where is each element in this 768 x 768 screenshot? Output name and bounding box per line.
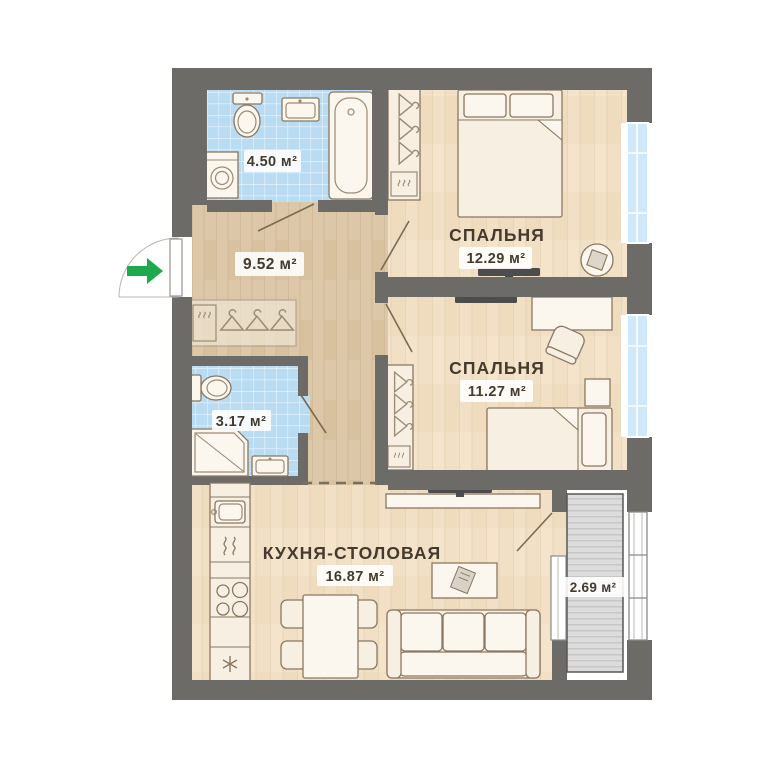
coffee-table-icon: [432, 563, 497, 598]
entrance-door: [119, 237, 192, 297]
balcony-window: [629, 512, 647, 640]
area-label-hallway: 9.52 м²: [243, 256, 297, 273]
room-title-bedroom-1: СПАЛЬНЯ: [449, 225, 545, 245]
dining-table: [303, 595, 358, 678]
wardrobe: [385, 365, 413, 470]
area-label-bathroom-small: 3.17 м²: [216, 414, 267, 430]
nightstand: [585, 379, 610, 406]
area-label-bathroom-main: 4.50 м²: [247, 154, 298, 170]
bath-sink-icon: [252, 456, 288, 476]
door-leaf: [170, 239, 182, 296]
pouf-icon: [581, 244, 613, 276]
double-bed-icon: [458, 90, 562, 217]
single-bed-icon: [487, 408, 612, 472]
toilet-icon: [191, 375, 231, 401]
desk: [532, 297, 612, 330]
area-label-balcony: 2.69 м²: [570, 580, 617, 595]
bath-sink-icon: [282, 98, 319, 121]
window: [621, 315, 648, 437]
floor-plan: 4.50 м² 9.52 м²: [0, 0, 768, 768]
washing-machine-icon: [206, 152, 238, 198]
floor-plan-canvas: 4.50 м² 9.52 м²: [0, 0, 768, 768]
coat-rack: [190, 300, 296, 346]
bathtub-icon: [329, 92, 373, 199]
wardrobe: [388, 88, 420, 200]
sofa: [387, 610, 540, 678]
balcony-inner-window: [551, 556, 566, 640]
area-label-kitchen: 16.87 м²: [325, 569, 384, 585]
room-title-kitchen: КУХНЯ-СТОЛОВАЯ: [263, 543, 442, 563]
windows: [621, 123, 648, 640]
toilet-icon: [233, 93, 262, 137]
area-label-bedroom-2: 11.27 м²: [468, 384, 526, 400]
shower-icon: [191, 429, 248, 476]
bathroom-small-door-gap: [296, 396, 310, 433]
room-bathroom-small: 3.17 м²: [184, 356, 310, 485]
kitchen-counter: [210, 483, 250, 682]
kitchen-sink-icon: [212, 501, 245, 523]
window: [621, 123, 648, 243]
room-title-bedroom-2: СПАЛЬНЯ: [449, 358, 545, 378]
area-label-bedroom-1: 12.29 м²: [466, 251, 525, 267]
